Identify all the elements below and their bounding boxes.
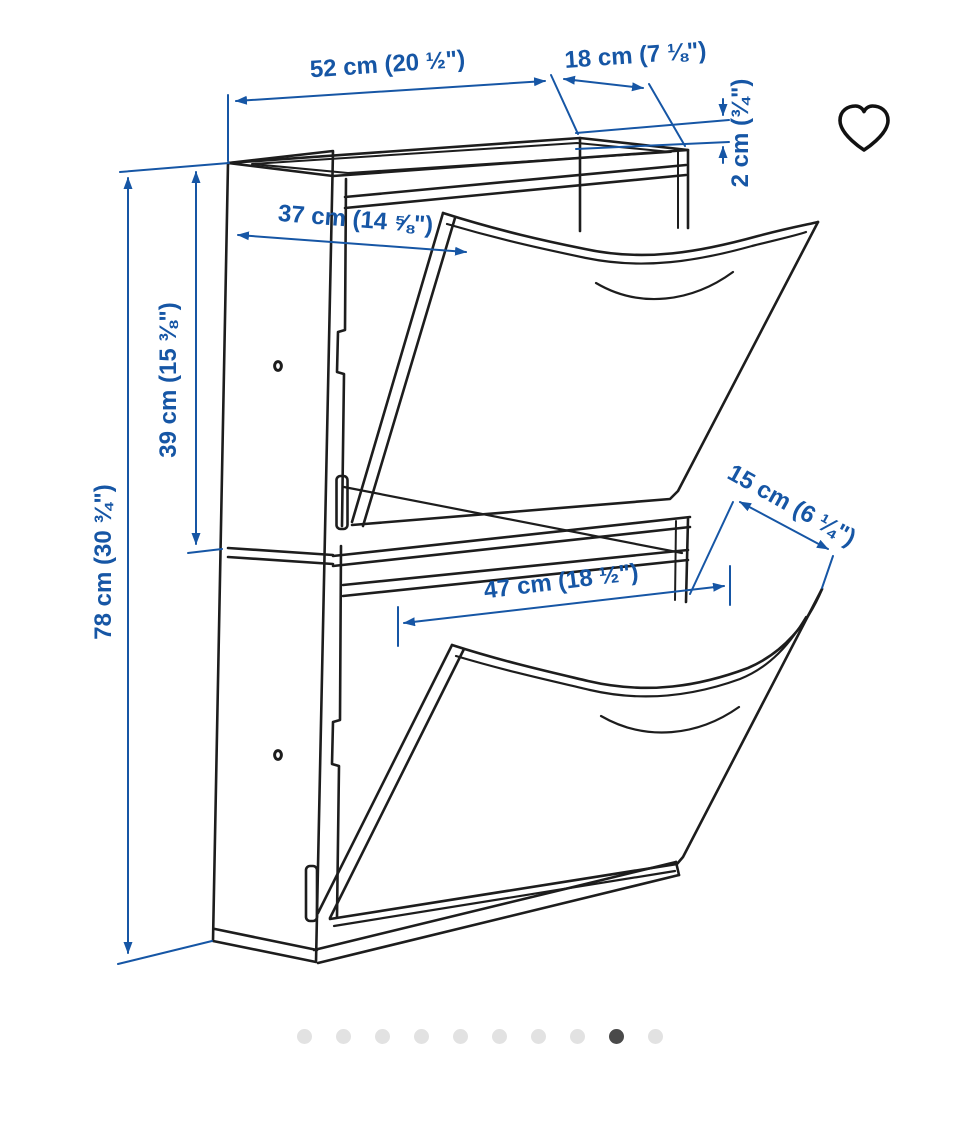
dimension-label: 37 cm (14 ⅝") (277, 200, 434, 239)
dimension-annotations: 52 cm (20 ½") 18 cm (7 ⅛") 2 cm (¾") 37 … (90, 37, 860, 964)
screw-hole (275, 362, 282, 371)
dimension-label: 2 cm (¾") (727, 79, 754, 188)
dimension-label: 15 cm (6 ¼") (723, 459, 860, 552)
pagination-dot[interactable] (414, 1029, 429, 1044)
pagination-dot[interactable] (570, 1029, 585, 1044)
pagination-dot[interactable] (297, 1029, 312, 1044)
pagination-dot[interactable] (531, 1029, 546, 1044)
product-image-stage: 52 cm (20 ½") 18 cm (7 ⅛") 2 cm (¾") 37 … (0, 0, 960, 1138)
dimension-label: 39 cm (15 ⅜") (155, 302, 182, 457)
pagination-dot-active[interactable] (609, 1029, 624, 1044)
product-dimension-illustration: 52 cm (20 ½") 18 cm (7 ⅛") 2 cm (¾") 37 … (0, 0, 960, 1138)
unit-divider (228, 548, 333, 564)
pagination-dot[interactable] (453, 1029, 468, 1044)
dimension-label: 52 cm (20 ½") (309, 46, 466, 84)
dimension-open-flap-depth: 37 cm (14 ⅝") (238, 200, 466, 252)
upper-flap (344, 213, 818, 553)
dimension-total-height: 78 cm (30 ¾") (90, 178, 212, 964)
handle-cutout (596, 272, 733, 299)
side-plinth-line (215, 929, 317, 950)
dimension-label: 78 cm (30 ¾") (90, 484, 117, 639)
heart-icon (836, 104, 892, 156)
hinge-bracket (306, 866, 317, 921)
handle-cutout (601, 707, 739, 733)
pagination-dot[interactable] (336, 1029, 351, 1044)
dimension-top-shelf-depth: 15 cm (6 ¼") (690, 459, 860, 594)
dimension-unit-height: 39 cm (15 ⅜") (120, 163, 229, 553)
dimension-depth-top: 18 cm (7 ⅛") (564, 37, 708, 146)
pagination-dot[interactable] (492, 1029, 507, 1044)
lower-flap (318, 589, 822, 926)
dimension-flap-width: 47 cm (18 ½") (398, 559, 730, 646)
carousel-pagination (297, 1029, 663, 1044)
dimension-width-top: 52 cm (20 ½") (228, 46, 578, 161)
screw-hole (275, 751, 282, 760)
lower-frame-edge (332, 546, 341, 917)
pagination-dot[interactable] (648, 1029, 663, 1044)
dimension-label: 18 cm (7 ⅛") (564, 37, 708, 74)
dimension-top-rail-height: 2 cm (¾") (576, 79, 754, 188)
cabinet-line-art (213, 138, 822, 963)
pagination-dot[interactable] (375, 1029, 390, 1044)
favorite-button[interactable] (832, 98, 896, 162)
